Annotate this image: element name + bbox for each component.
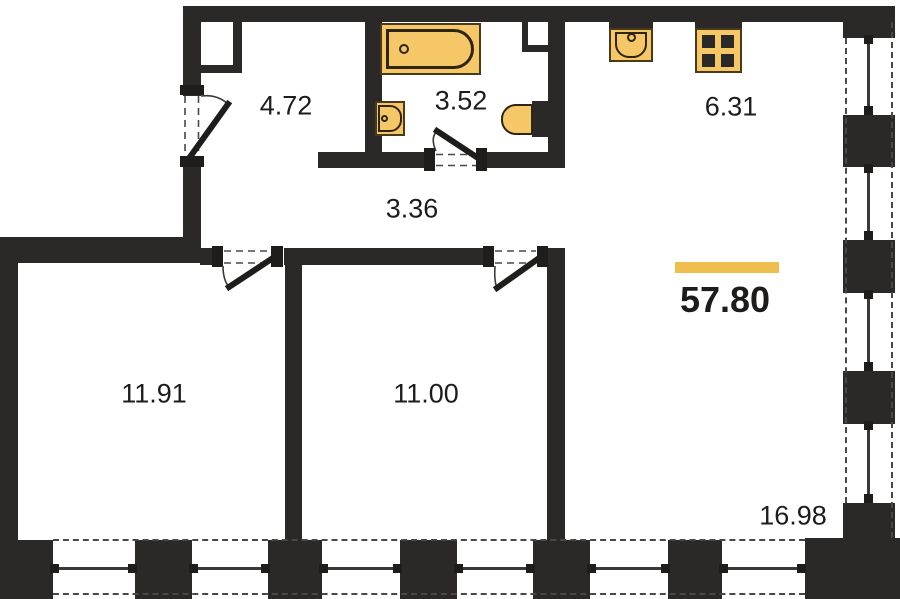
- wall-hall-exterior: [0, 237, 200, 263]
- window-stop: [864, 362, 873, 371]
- window-face-line: [53, 593, 805, 595]
- room-label-living-room: 16.98: [759, 501, 827, 532]
- door-jamb: [180, 85, 204, 95]
- window-stop: [864, 106, 873, 115]
- door-jamb: [476, 148, 487, 171]
- total-area-label: 57.80: [680, 279, 770, 321]
- window-stop: [864, 231, 873, 240]
- window-stop: [864, 290, 873, 299]
- wall-pier: [843, 240, 895, 293]
- wall-pier: [268, 540, 322, 599]
- wall-bedroom2-right: [547, 248, 565, 543]
- wall-pier: [668, 540, 722, 599]
- floor-plan: 4.72 3.52 3.36 6.31 11.91 11.00 16.98 57…: [0, 0, 900, 599]
- door-jamb: [537, 246, 548, 267]
- room-label-bedroom-2: 11.00: [393, 379, 459, 410]
- burner: [702, 54, 715, 67]
- wall-entry-lower: [183, 156, 201, 263]
- wall-bath-shaft-bottom: [522, 45, 548, 52]
- window-stop: [50, 564, 59, 573]
- window-stop: [319, 564, 328, 573]
- wall-bath-bottom-left: [318, 152, 432, 168]
- window-stop: [128, 564, 137, 573]
- wall-entry-upper: [183, 6, 201, 96]
- burner: [702, 35, 715, 48]
- window: [457, 567, 533, 570]
- wall-pier: [843, 115, 895, 167]
- wall-bedrooms-divider: [285, 263, 302, 543]
- wall-shaft-right: [233, 6, 242, 73]
- wall-pier: [400, 540, 457, 599]
- window-stop: [864, 421, 873, 430]
- wall-corner-bottom-right: [805, 538, 900, 599]
- total-area-accent-bar: [675, 262, 779, 273]
- window: [867, 38, 870, 115]
- window-stop: [189, 564, 198, 573]
- room-label-bathroom: 3.52: [435, 86, 488, 117]
- window-face-line: [53, 539, 805, 541]
- room-label-bedroom-1: 11.91: [121, 379, 187, 410]
- burner: [721, 35, 734, 48]
- door-jamb: [271, 246, 283, 267]
- window: [867, 424, 870, 503]
- window: [867, 167, 870, 240]
- wall-top: [183, 6, 895, 22]
- window-stop: [864, 164, 873, 173]
- window: [722, 567, 805, 570]
- window: [590, 567, 668, 570]
- wall-pier: [135, 540, 192, 599]
- room-label-kitchen: 6.31: [705, 92, 758, 123]
- door-jamb: [483, 246, 494, 267]
- window-stop: [864, 35, 873, 44]
- window: [867, 293, 870, 371]
- window-stop: [661, 564, 670, 573]
- door-jamb: [212, 246, 223, 267]
- wall-corner-bottom-left: [0, 540, 53, 599]
- window: [322, 567, 400, 570]
- wall-shaft-bottom: [183, 65, 242, 73]
- window-stop: [526, 564, 535, 573]
- window: [192, 567, 268, 570]
- window-stop: [454, 564, 463, 573]
- window: [53, 567, 135, 570]
- window-stop: [393, 564, 402, 573]
- door-opening: [185, 96, 536, 263]
- window-stop: [587, 564, 596, 573]
- door-jamb: [180, 156, 204, 167]
- window-stop: [864, 494, 873, 503]
- room-label-entry-hall: 4.72: [260, 91, 313, 122]
- burner: [721, 54, 734, 67]
- wall-hall-seg-2: [284, 248, 487, 265]
- window-face-line: [845, 38, 847, 503]
- wall-pier: [843, 371, 895, 424]
- window-face-line: [891, 22, 893, 538]
- window-stop: [797, 564, 806, 573]
- door-jamb: [424, 148, 435, 171]
- window-stop: [719, 564, 728, 573]
- wall-bath-right: [548, 22, 565, 168]
- window-stop: [261, 564, 270, 573]
- room-label-corridor: 3.36: [386, 194, 439, 225]
- wall-pier: [533, 540, 590, 599]
